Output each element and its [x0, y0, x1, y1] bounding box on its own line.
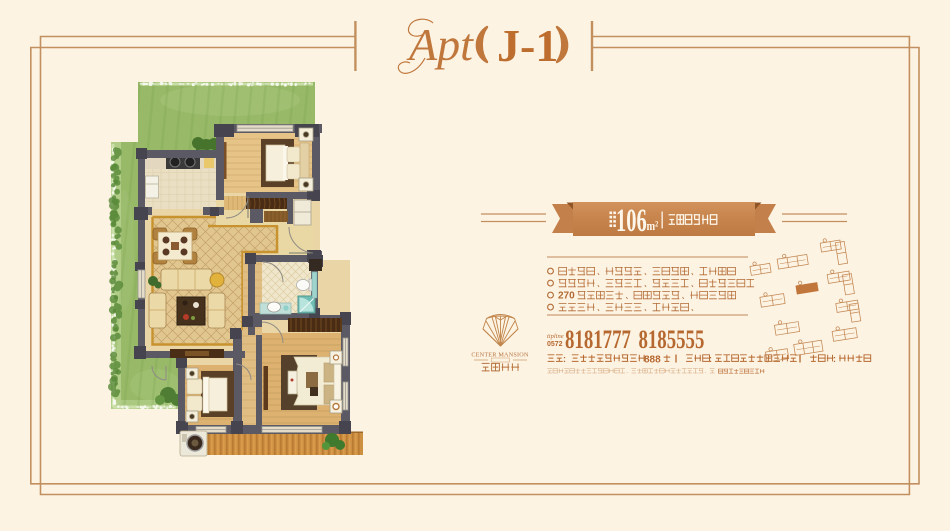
svg-text:tipline: tipline [547, 333, 564, 340]
svg-text:0572: 0572 [547, 341, 563, 348]
svg-text:m²: m² [647, 219, 659, 233]
svg-text:CENTER MANSION: CENTER MANSION [471, 352, 529, 359]
svg-text:Apt: Apt [406, 19, 474, 70]
svg-text::: : [833, 354, 836, 364]
svg-text:8181777 8185555: 8181777 8185555 [565, 325, 704, 354]
svg-text:888: 888 [644, 355, 661, 366]
svg-text:106: 106 [616, 202, 647, 238]
svg-text::: : [709, 354, 712, 364]
svg-text::: : [563, 354, 566, 364]
svg-text:J-1: J-1 [497, 20, 558, 71]
svg-text:270: 270 [558, 291, 575, 302]
